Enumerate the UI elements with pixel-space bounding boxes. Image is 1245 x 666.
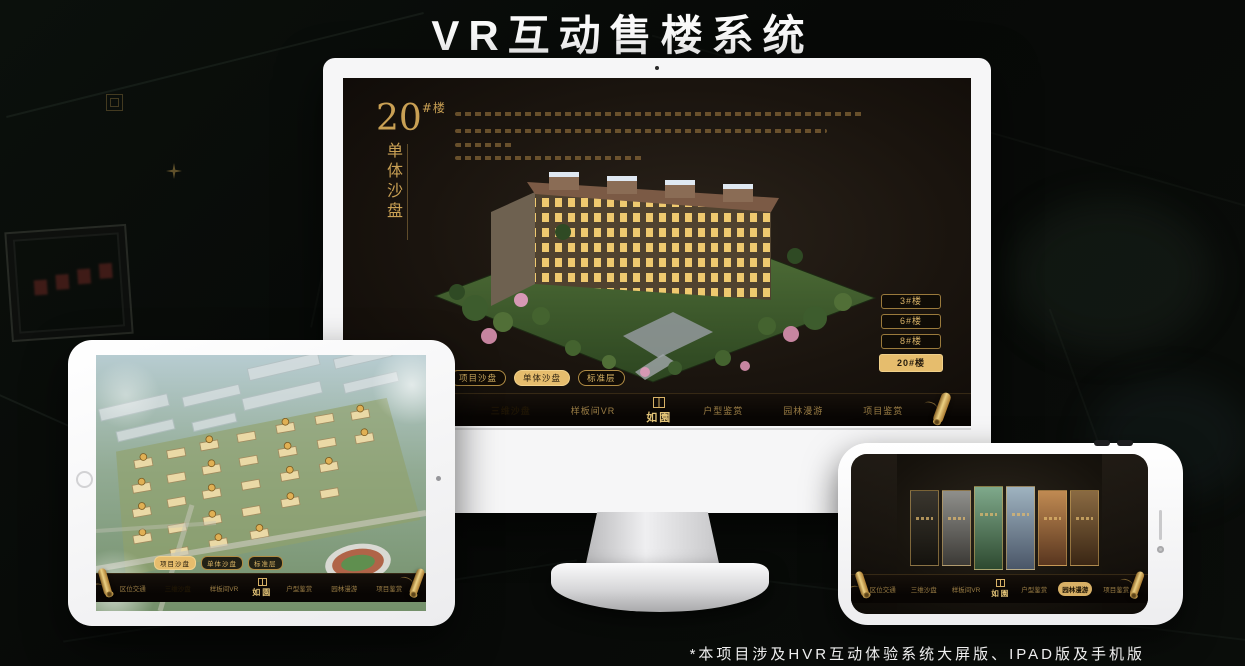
scroll-icon[interactable] <box>1129 570 1145 597</box>
subtab-project-sandbox[interactable]: 项目沙盘 <box>154 556 196 570</box>
nav-item-transport[interactable]: 区位交通 <box>866 582 900 596</box>
nav-item-model-room-vr[interactable]: 样板间VR <box>205 581 244 595</box>
building-button-8[interactable]: 8#楼 <box>881 334 941 349</box>
nav-item-3d-sandbox[interactable]: 三维沙盘 <box>482 401 540 420</box>
nav-item-garden-tour[interactable]: 园林漫游 <box>326 581 362 595</box>
ruyuan-logo: 如園 <box>252 578 272 598</box>
volume-button <box>1117 440 1133 446</box>
tablet-subtabs: 项目沙盘 单体沙盘 标准层 <box>154 556 283 570</box>
logo-text: 如園 <box>252 587 272 598</box>
tablet-navbar: 区位交通 三维沙盘 样板间VR 如園 户型鉴赏 园林漫游 项目鉴赏 <box>96 573 426 602</box>
carousel-card[interactable] <box>1006 486 1035 570</box>
nav-item-garden-tour[interactable]: 园林漫游 <box>774 401 832 420</box>
nav-item-project-view[interactable]: 项目鉴赏 <box>854 401 912 420</box>
nav-item-unit-plans[interactable]: 户型鉴赏 <box>281 581 317 595</box>
subtab-single-sandbox[interactable]: 单体沙盘 <box>514 370 570 386</box>
building-button-3[interactable]: 3#楼 <box>881 294 941 309</box>
building-button-20[interactable]: 20#楼 <box>879 354 943 372</box>
seal-icon <box>653 397 665 408</box>
bg-seal-icon <box>106 94 123 111</box>
description-text-line <box>455 112 863 116</box>
phone-screen: 区位交通 三维沙盘 样板间VR 如園 户型鉴赏 园林漫游 项目鉴赏 <box>851 454 1148 614</box>
background-plaque <box>4 224 133 342</box>
nav-item-3d-sandbox[interactable]: 三维沙盘 <box>160 581 196 595</box>
building-button-6[interactable]: 6#楼 <box>881 314 941 329</box>
monitor-stand-base <box>551 563 769 612</box>
nav-item-transport[interactable]: 区位交通 <box>115 581 151 595</box>
carousel-card[interactable] <box>942 490 971 566</box>
seal-icon <box>996 579 1005 587</box>
seal-icon <box>258 578 267 586</box>
nav-item-model-room-vr[interactable]: 样板间VR <box>562 401 625 420</box>
carousel-card[interactable] <box>910 490 939 566</box>
floor-headline: 20#楼 <box>376 98 446 139</box>
footnote-text: *本项目涉及HVR互动体验系统大屏版、IPAD版及手机版 <box>690 643 1145 664</box>
home-button-icon <box>76 471 93 488</box>
nav-item-3d-sandbox[interactable]: 三维沙盘 <box>907 582 941 596</box>
carousel-card[interactable] <box>1070 490 1099 566</box>
bg-scenery <box>1010 200 1210 350</box>
carousel-card[interactable] <box>1038 490 1067 566</box>
webcam-icon <box>655 66 659 70</box>
divider <box>407 144 408 240</box>
building-selector: 3#楼 6#楼 8#楼 20#楼 <box>879 294 943 372</box>
nav-item-garden-tour[interactable]: 园林漫游 <box>1058 582 1092 596</box>
scroll-icon[interactable] <box>932 391 952 424</box>
volume-button <box>1094 440 1110 446</box>
subtab-single-sandbox[interactable]: 单体沙盘 <box>201 556 243 570</box>
camera-icon <box>1157 546 1164 553</box>
phone-navbar: 区位交通 三维沙盘 样板间VR 如園 户型鉴赏 园林漫游 项目鉴赏 <box>851 574 1148 603</box>
monitor-subtabs: 项目沙盘 单体沙盘 标准层 <box>450 370 625 386</box>
floor-number: 20 <box>376 98 422 139</box>
building-model-render[interactable] <box>423 136 883 386</box>
nav-item-unit-plans[interactable]: 户型鉴赏 <box>694 401 752 420</box>
subtab-project-sandbox[interactable]: 项目沙盘 <box>450 370 506 386</box>
tablet-device: 项目沙盘 单体沙盘 标准层 区位交通 三维沙盘 样板间VR 如園 户型鉴赏 园林… <box>68 340 455 626</box>
page-title: VR互动售楼系统 <box>0 2 1245 63</box>
phone-device: 区位交通 三维沙盘 样板间VR 如園 户型鉴赏 园林漫游 项目鉴赏 <box>838 443 1183 625</box>
camera-icon <box>436 476 441 481</box>
subtab-standard-floor[interactable]: 标准层 <box>248 556 283 570</box>
ruyuan-logo: 如園 <box>991 579 1010 599</box>
tablet-screen: 项目沙盘 单体沙盘 标准层 区位交通 三维沙盘 样板间VR 如園 户型鉴赏 园林… <box>96 355 426 611</box>
monitor-stand-neck <box>585 512 720 568</box>
floor-suffix: #楼 <box>422 101 446 115</box>
speaker-icon <box>1159 510 1162 540</box>
subtab-standard-floor[interactable]: 标准层 <box>578 370 625 386</box>
nav-item-unit-plans[interactable]: 户型鉴赏 <box>1017 582 1051 596</box>
nav-item-model-room-vr[interactable]: 样板间VR <box>948 582 985 596</box>
floor-subtitle: 单体沙盘 <box>381 142 405 222</box>
description-text-line <box>455 129 827 133</box>
compass-star-icon <box>166 163 182 179</box>
logo-text: 如園 <box>991 588 1010 599</box>
panorama-carousel <box>910 485 1099 571</box>
carousel-card[interactable] <box>974 486 1003 570</box>
logo-text: 如園 <box>646 409 672 425</box>
ruyuan-logo: 如園 <box>646 397 672 425</box>
promo-canvas: VR互动售楼系统 20#楼 单体沙盘 <box>0 0 1245 666</box>
